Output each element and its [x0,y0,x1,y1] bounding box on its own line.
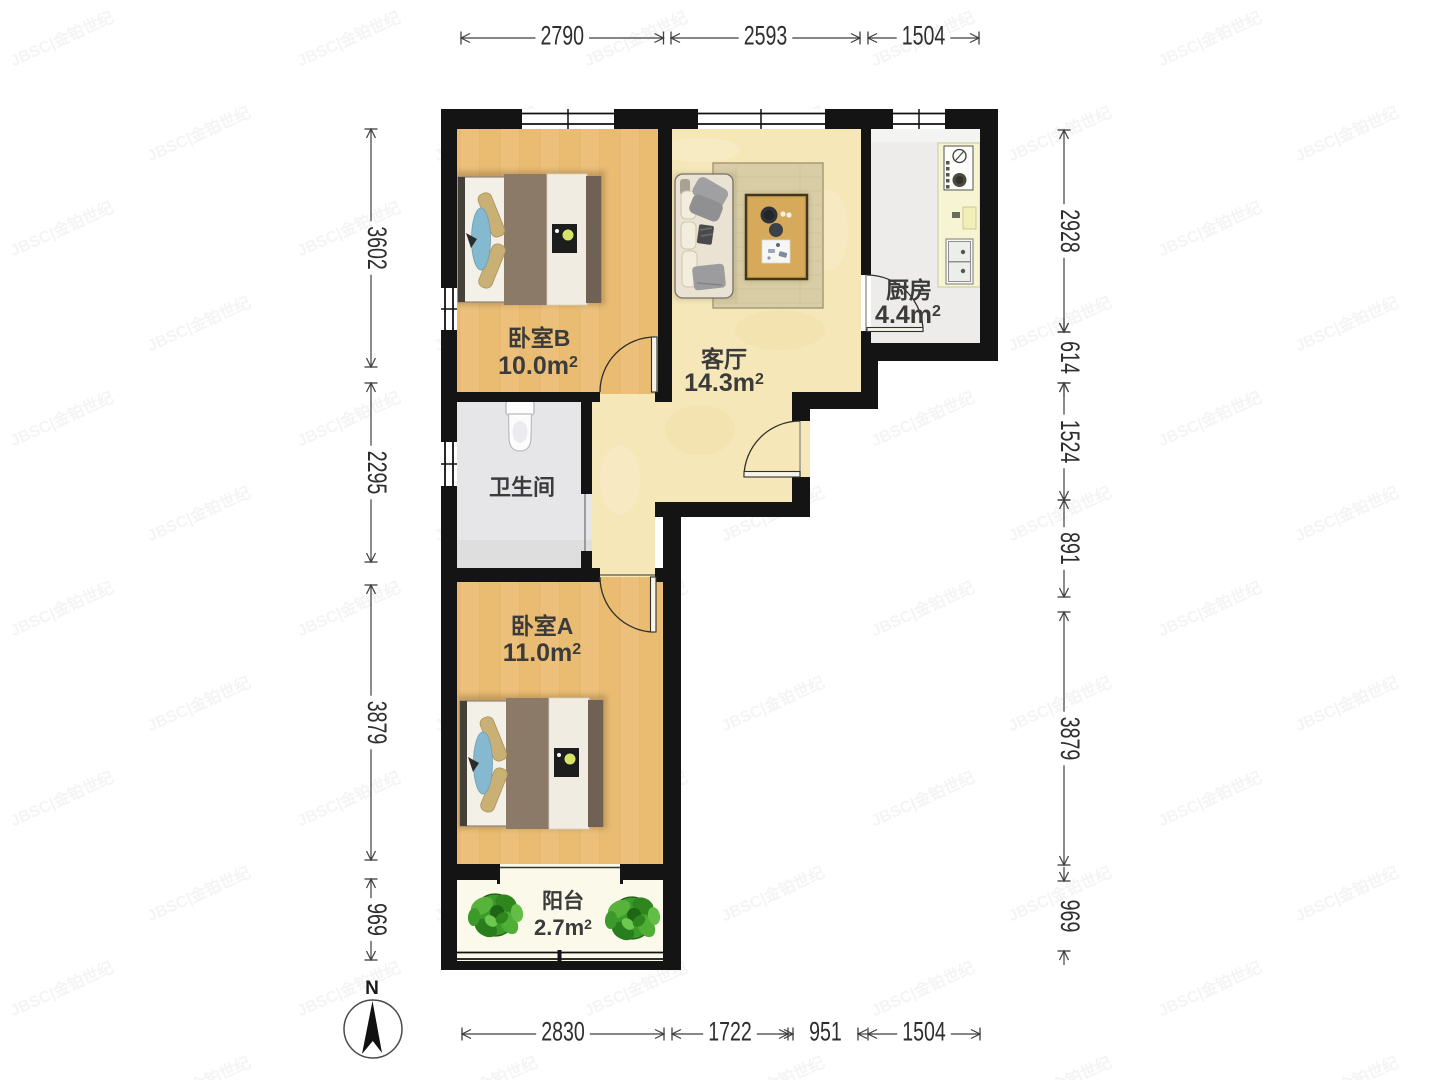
svg-text:10.0m2: 10.0m2 [498,352,578,380]
svg-text:卧室A: 卧室A [511,613,574,639]
svg-text:969: 969 [1055,900,1085,933]
svg-text:14.3m2: 14.3m2 [684,369,764,397]
svg-text:阳台: 阳台 [542,889,584,913]
svg-text:3602: 3602 [362,226,392,270]
svg-text:3879: 3879 [1055,717,1085,761]
svg-text:3879: 3879 [362,701,392,745]
svg-text:951: 951 [809,1017,842,1047]
svg-text:11.0m2: 11.0m2 [503,639,582,667]
svg-text:卫生间: 卫生间 [489,475,555,500]
svg-text:1524: 1524 [1055,420,1085,464]
svg-text:2830: 2830 [541,1017,585,1047]
svg-text:614: 614 [1055,341,1085,374]
svg-text:1504: 1504 [902,1017,946,1047]
svg-text:4.4m2: 4.4m2 [875,301,941,329]
svg-text:1722: 1722 [708,1017,752,1047]
svg-text:2.7m2: 2.7m2 [534,915,592,940]
svg-text:厨房: 厨房 [886,277,932,303]
svg-text:891: 891 [1055,532,1085,565]
svg-text:2790: 2790 [540,21,584,51]
svg-text:2593: 2593 [744,21,788,51]
svg-text:2928: 2928 [1055,209,1085,253]
svg-text:969: 969 [362,903,392,936]
svg-text:N: N [365,978,379,999]
svg-text:卧室B: 卧室B [508,325,571,351]
svg-text:2295: 2295 [362,451,392,495]
svg-text:1504: 1504 [902,21,946,51]
